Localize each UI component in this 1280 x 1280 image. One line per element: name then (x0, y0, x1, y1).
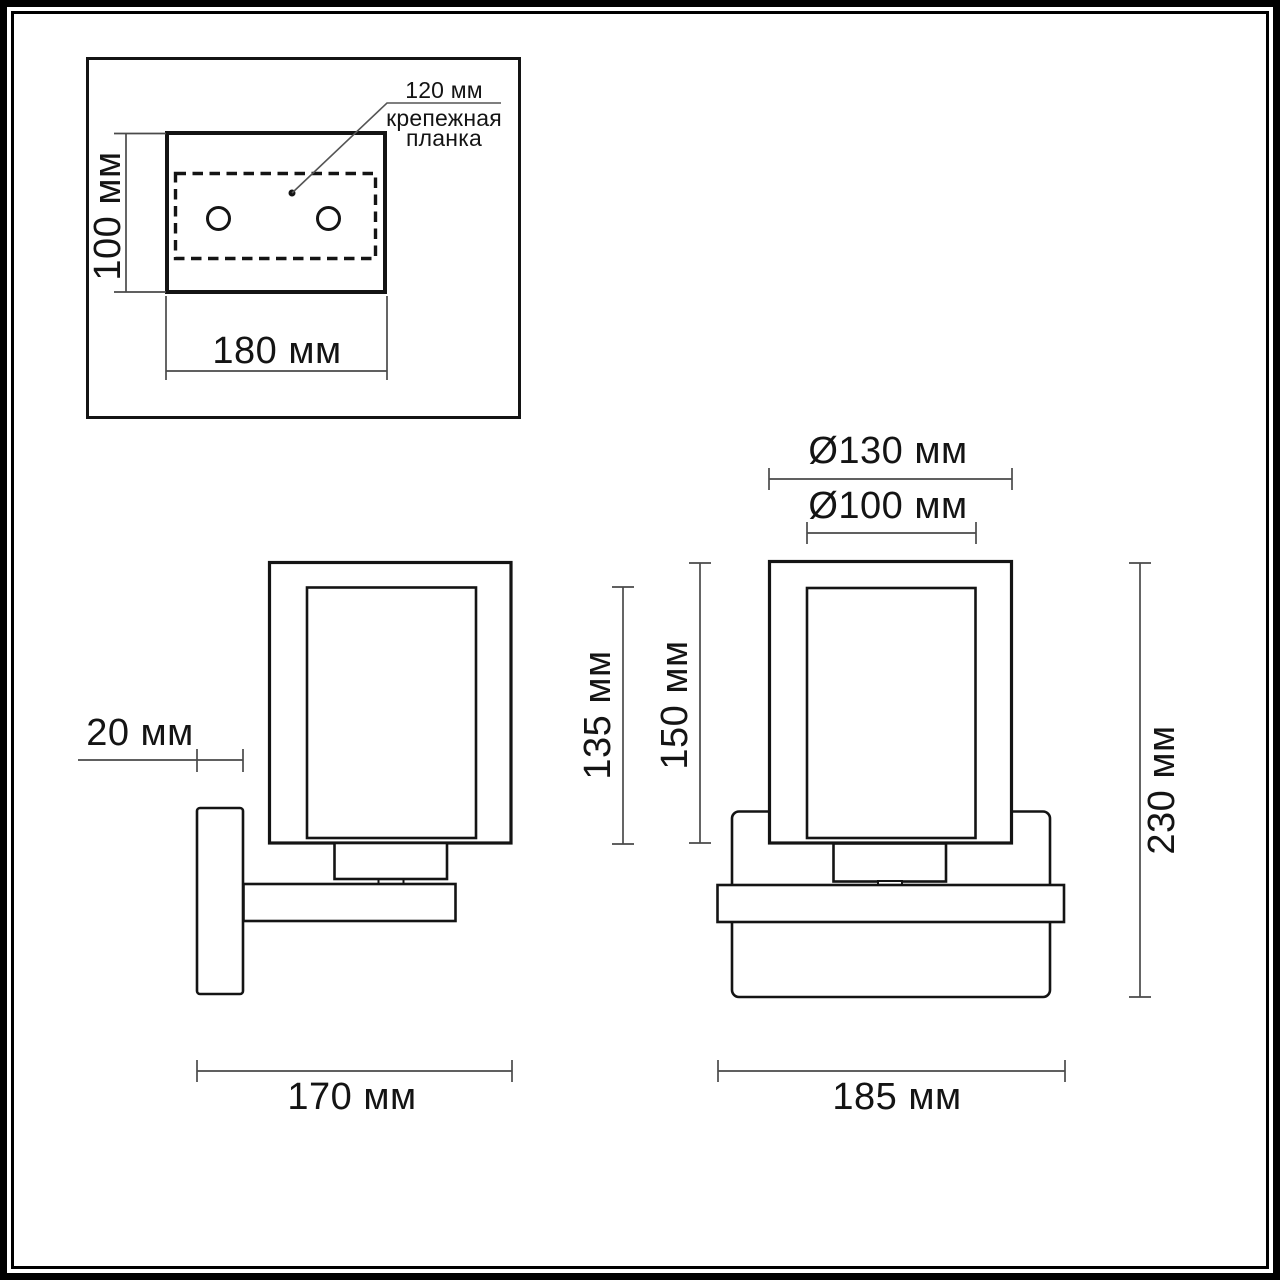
dim-label-170mm: 170 мм (232, 1078, 472, 1116)
side-arm (244, 884, 456, 921)
dim-label-185mm: 185 мм (777, 1078, 1017, 1116)
side-socket (335, 843, 448, 879)
dim-label-150mm: 150 мм (656, 585, 694, 825)
dim-label-180mm: 180 мм (157, 332, 397, 370)
side-view (78, 563, 512, 1083)
bracket-label: крепежная планка (364, 108, 524, 148)
dim-label-135mm: 135 мм (579, 595, 617, 835)
front-socket (834, 844, 947, 882)
dim-label-20mm: 20 мм (40, 714, 240, 752)
dim-label-d130mm: Ø130 мм (768, 432, 1008, 470)
wall-plate-outline (167, 133, 385, 292)
side-wall-plate (197, 808, 243, 994)
drawing-linework (0, 0, 1280, 1280)
dim-label-100mm: 100 мм (89, 96, 127, 336)
bracket-label-line2: планка (364, 128, 524, 148)
dim-label-d100mm: Ø100 мм (768, 487, 1008, 525)
dim-label-120mm: 120 мм (364, 79, 524, 102)
dim-label-230mm: 230 мм (1143, 670, 1181, 910)
front-arm-bar (718, 885, 1065, 922)
screw-hole-right (318, 208, 340, 230)
screw-hole-left (208, 208, 230, 230)
